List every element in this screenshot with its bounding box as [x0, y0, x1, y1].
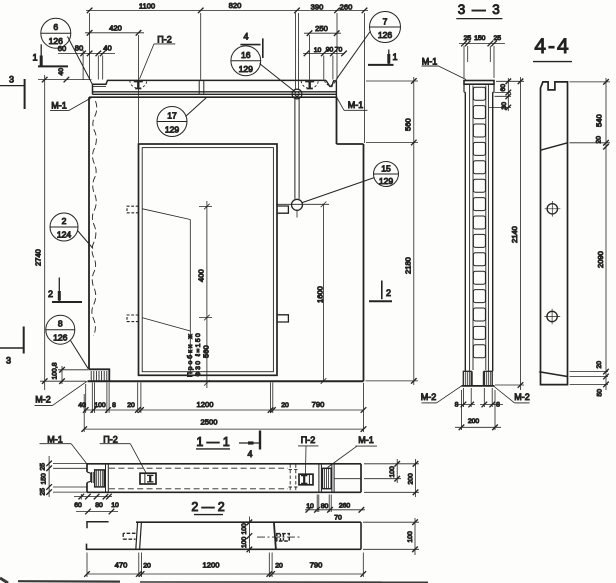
- svg-text:20: 20: [596, 136, 603, 144]
- svg-text:16: 16: [241, 50, 251, 60]
- svg-text:2: 2: [62, 216, 67, 226]
- svg-text:60: 60: [500, 84, 507, 92]
- svg-text:540: 540: [595, 114, 604, 127]
- svg-text:20: 20: [281, 402, 289, 409]
- svg-text:17: 17: [167, 111, 177, 121]
- svg-text:2: 2: [48, 289, 53, 299]
- svg-text:100: 100: [389, 466, 396, 478]
- svg-text:М-1: М-1: [422, 57, 438, 67]
- svg-text:10: 10: [111, 502, 119, 509]
- svg-text:129: 129: [239, 64, 254, 74]
- svg-text:2740: 2740: [34, 249, 43, 266]
- svg-text:8: 8: [455, 402, 459, 409]
- svg-text:10: 10: [306, 503, 314, 510]
- svg-text:790: 790: [310, 561, 323, 570]
- svg-text:М-1: М-1: [348, 100, 364, 110]
- svg-text:50: 50: [597, 389, 604, 397]
- svg-text:90: 90: [326, 46, 334, 53]
- svg-text:6: 6: [53, 22, 58, 32]
- svg-text:126: 126: [53, 333, 68, 343]
- svg-text:20: 20: [596, 361, 603, 369]
- svg-text:8: 8: [58, 319, 63, 329]
- svg-text:560: 560: [202, 345, 211, 358]
- svg-text:8: 8: [112, 402, 116, 409]
- svg-text:30: 30: [501, 102, 508, 110]
- svg-text:8: 8: [496, 402, 500, 409]
- svg-text:100,8: 100,8: [52, 362, 59, 379]
- svg-text:3 — 3: 3 — 3: [458, 2, 502, 17]
- svg-text:4: 4: [243, 32, 248, 42]
- svg-text:3: 3: [9, 75, 14, 85]
- svg-text:Пробки ж: Пробки ж: [186, 332, 194, 377]
- svg-text:100: 100: [94, 402, 106, 409]
- svg-text:100: 100: [241, 523, 248, 535]
- svg-text:М-2: М-2: [35, 394, 51, 404]
- svg-text:3: 3: [6, 355, 11, 365]
- svg-text:2180: 2180: [404, 257, 413, 274]
- svg-text:40: 40: [103, 44, 111, 53]
- svg-text:129: 129: [379, 176, 394, 186]
- svg-text:40: 40: [58, 68, 65, 76]
- svg-text:790: 790: [312, 400, 325, 409]
- svg-text:420: 420: [109, 23, 122, 32]
- svg-text:7: 7: [383, 17, 388, 27]
- svg-text:70: 70: [334, 515, 342, 522]
- svg-text:20: 20: [127, 402, 135, 409]
- svg-text:260: 260: [340, 2, 353, 11]
- svg-text:260: 260: [339, 503, 351, 510]
- svg-text:80: 80: [321, 503, 329, 510]
- svg-text:П-2: П-2: [157, 34, 171, 44]
- svg-text:25: 25: [40, 463, 47, 471]
- svg-text:25: 25: [464, 35, 472, 42]
- svg-text:150: 150: [41, 473, 48, 485]
- svg-text:80: 80: [95, 502, 103, 509]
- svg-text:390: 390: [311, 2, 324, 11]
- svg-text:25: 25: [494, 35, 502, 42]
- svg-text:560: 560: [404, 118, 413, 131]
- svg-text:250: 250: [315, 24, 328, 33]
- svg-text:820: 820: [229, 1, 242, 10]
- svg-text:М-2: М-2: [514, 392, 530, 402]
- svg-text:2: 2: [386, 288, 391, 298]
- svg-text:400: 400: [197, 269, 206, 282]
- svg-text:100: 100: [241, 536, 248, 548]
- svg-text:1600: 1600: [316, 286, 325, 303]
- svg-text:М-2: М-2: [421, 392, 437, 402]
- svg-text:М-1: М-1: [358, 435, 374, 445]
- svg-text:200: 200: [468, 418, 480, 425]
- svg-text:124: 124: [57, 230, 72, 240]
- svg-text:М-1: М-1: [47, 435, 63, 445]
- svg-text:2140: 2140: [510, 226, 519, 243]
- svg-text:20: 20: [143, 563, 151, 570]
- svg-text:4-4: 4-4: [534, 35, 570, 58]
- svg-text:1200: 1200: [197, 400, 214, 409]
- svg-text:1: 1: [32, 52, 37, 62]
- svg-text:2 — 2: 2 — 2: [191, 500, 224, 514]
- svg-text:4: 4: [247, 449, 252, 459]
- svg-text:1: 1: [392, 52, 397, 62]
- svg-text:100: 100: [407, 531, 414, 543]
- svg-text:470: 470: [115, 561, 128, 570]
- svg-text:150: 150: [474, 35, 486, 42]
- svg-text:15: 15: [381, 164, 391, 174]
- svg-text:200: 200: [408, 473, 415, 485]
- svg-text:126: 126: [378, 30, 393, 40]
- svg-text:129: 129: [165, 125, 180, 135]
- svg-text:1100: 1100: [139, 2, 155, 11]
- svg-text:2090: 2090: [596, 251, 605, 268]
- svg-text:20: 20: [275, 563, 283, 570]
- svg-text:П-2: П-2: [103, 435, 117, 445]
- svg-text:1 — 1: 1 — 1: [196, 435, 229, 449]
- svg-text:70: 70: [335, 46, 343, 53]
- svg-text:М-1: М-1: [51, 101, 67, 111]
- svg-text:10: 10: [314, 47, 322, 54]
- svg-text:П-2: П-2: [301, 435, 315, 445]
- svg-text:80: 80: [75, 44, 83, 53]
- svg-text:40: 40: [78, 402, 86, 409]
- svg-text:126: 126: [49, 36, 64, 46]
- svg-text:25: 25: [40, 488, 47, 496]
- svg-text:60: 60: [74, 502, 82, 509]
- svg-text:2500: 2500: [201, 417, 218, 426]
- svg-text:1200: 1200: [203, 561, 220, 570]
